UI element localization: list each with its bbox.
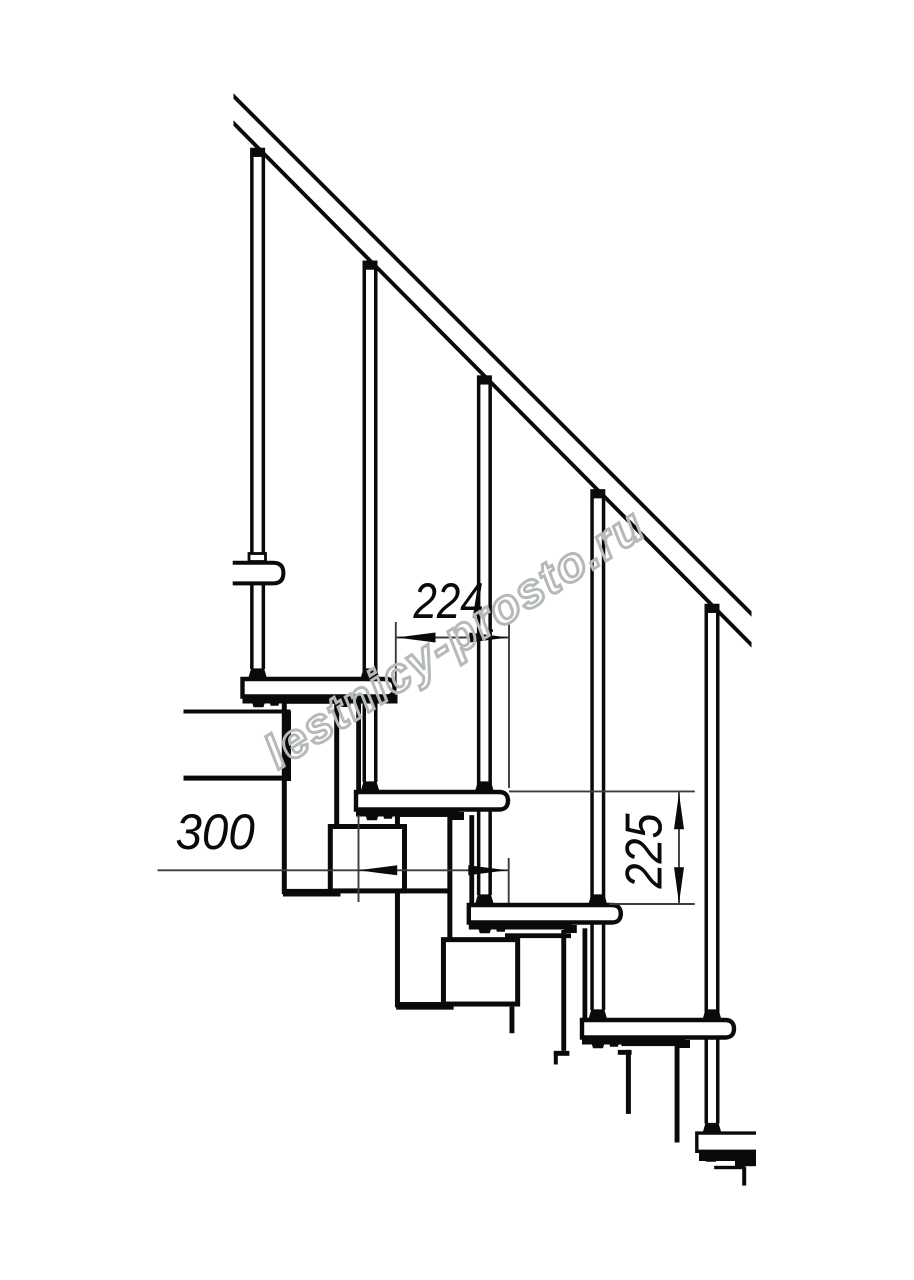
svg-text:225: 225: [616, 813, 674, 890]
svg-text:300: 300: [176, 805, 255, 860]
